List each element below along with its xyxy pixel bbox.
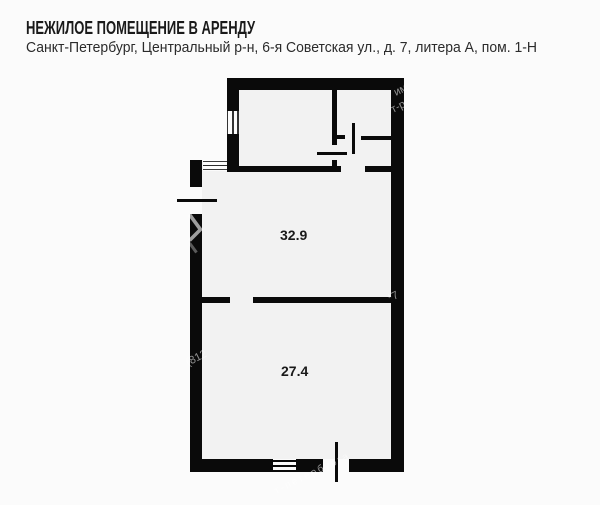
svg-text:т-петербурга: т-петербурга xyxy=(272,449,352,496)
svg-text:*7: *7 xyxy=(386,289,401,304)
svg-text:т-ре: т-ре xyxy=(389,95,413,115)
svg-text:(812: (812 xyxy=(184,348,209,369)
